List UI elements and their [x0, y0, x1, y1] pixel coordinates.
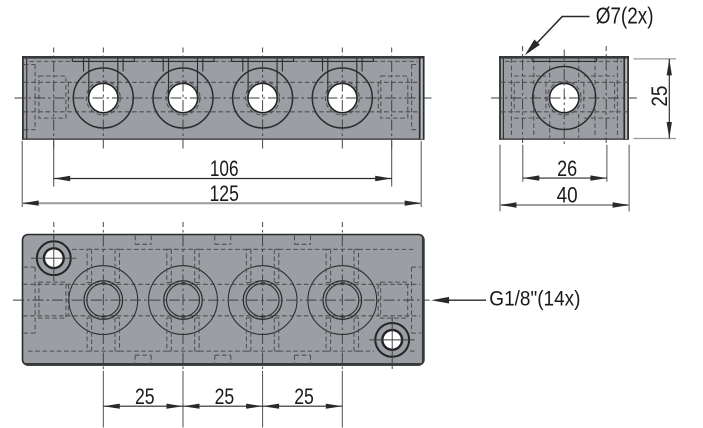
svg-text:25: 25	[294, 384, 314, 409]
svg-text:25: 25	[647, 86, 672, 107]
svg-text:G1/8"(14x): G1/8"(14x)	[489, 287, 580, 311]
svg-text:40: 40	[557, 183, 578, 208]
svg-text:Ø7(2x): Ø7(2x)	[596, 2, 654, 28]
svg-text:26: 26	[557, 156, 577, 181]
svg-text:25: 25	[215, 384, 235, 409]
svg-text:125: 125	[210, 181, 239, 206]
svg-text:106: 106	[210, 156, 239, 181]
svg-text:25: 25	[135, 384, 155, 409]
